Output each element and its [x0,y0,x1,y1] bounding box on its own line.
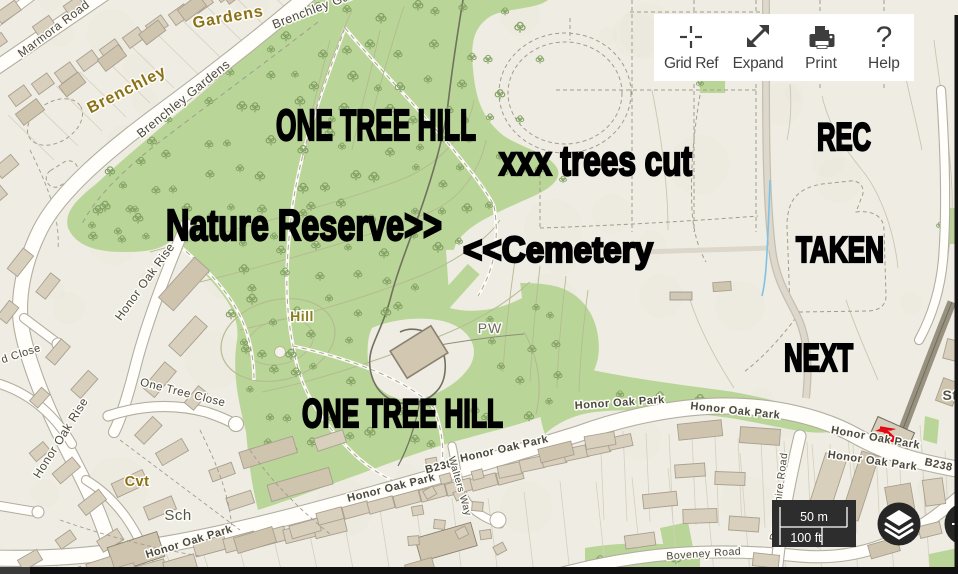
svg-text:?: ? [876,21,893,54]
svg-text:100 ft: 100 ft [790,531,822,545]
svg-text:NEXT: NEXT [784,337,853,380]
svg-text:Sch: Sch [164,507,191,524]
svg-text:ONE TREE HILL: ONE TREE HILL [302,392,503,436]
svg-text:TAKEN: TAKEN [796,229,884,270]
svg-text:Expand: Expand [733,55,784,72]
svg-text:ONE TREE HILL: ONE TREE HILL [276,101,476,150]
svg-text:Hill: Hill [290,308,314,324]
svg-text:xxx trees cut: xxx trees cut [499,137,692,184]
svg-text:Cvt: Cvt [125,474,150,490]
svg-text:50 m: 50 m [800,510,828,524]
svg-text:<<Cemetery: <<Cemetery [463,229,653,270]
svg-text:Help: Help [868,55,900,72]
svg-text:Print: Print [805,55,838,72]
svg-text:REC: REC [817,116,871,159]
svg-text:Nature Reserve>>: Nature Reserve>> [166,201,442,250]
svg-text:Grid Ref: Grid Ref [664,55,719,72]
svg-text:PW: PW [478,320,503,336]
